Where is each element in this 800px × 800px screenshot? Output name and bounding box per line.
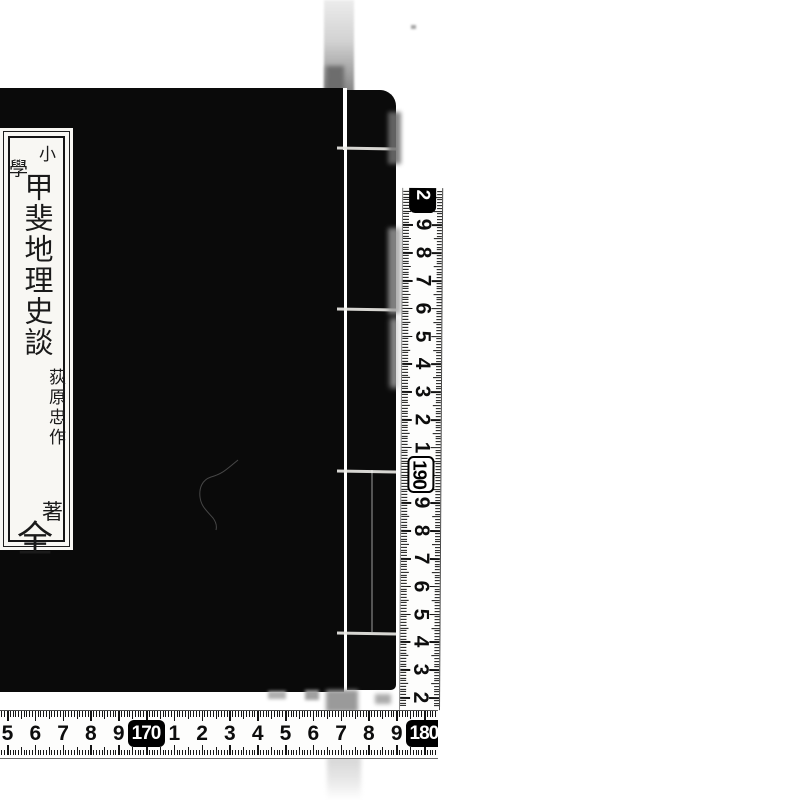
tick-mm bbox=[49, 711, 50, 719]
tick-mm bbox=[24, 750, 25, 756]
ruler-number: 6 bbox=[299, 722, 327, 746]
ruler-number: 8 bbox=[408, 237, 438, 267]
tick-mm bbox=[413, 750, 414, 756]
tick-mm bbox=[157, 711, 158, 717]
tick-mm bbox=[435, 472, 441, 473]
tick-mm bbox=[355, 747, 356, 755]
tick-mm bbox=[216, 711, 217, 719]
tick-mm bbox=[21, 711, 22, 719]
tick-mm bbox=[143, 750, 144, 756]
tick-mm bbox=[202, 711, 204, 721]
tick-mm bbox=[263, 711, 264, 717]
tick-mm bbox=[263, 750, 264, 756]
binding-stitch-4 bbox=[337, 631, 396, 635]
ruler-number: 7 bbox=[327, 722, 355, 746]
tick-mm bbox=[204, 711, 205, 717]
tick-mm bbox=[218, 711, 219, 717]
tick-mm bbox=[63, 745, 65, 755]
tick-mm bbox=[185, 711, 186, 717]
tick-mm bbox=[227, 750, 228, 756]
tick-mm bbox=[79, 750, 80, 756]
tick-mm bbox=[177, 750, 178, 756]
tick-mm bbox=[165, 711, 166, 717]
tick-mm bbox=[246, 711, 247, 717]
ruler-number: 5 bbox=[405, 599, 435, 629]
tick-mm bbox=[260, 711, 261, 717]
tick-mm bbox=[435, 477, 441, 478]
tick-mm bbox=[152, 711, 153, 717]
tick-mm bbox=[77, 747, 78, 755]
tick-mm bbox=[221, 711, 222, 717]
tick-mm bbox=[129, 711, 130, 717]
tick-mm bbox=[437, 191, 443, 192]
tick-mm bbox=[274, 750, 275, 756]
tick-mm bbox=[427, 750, 428, 756]
tick-mm bbox=[321, 711, 322, 717]
ruler-horizontal-cm: 56789170123456789180 bbox=[0, 710, 438, 759]
tick-mm bbox=[213, 750, 214, 756]
tick-mm bbox=[7, 711, 9, 721]
tick-mm bbox=[335, 711, 336, 717]
tick-mm bbox=[154, 711, 155, 717]
tick-mm bbox=[199, 711, 200, 717]
tick-mm bbox=[335, 750, 336, 756]
tick-mm bbox=[374, 711, 375, 717]
ruler-decimeter-box: 2 bbox=[409, 188, 436, 213]
tick-mm bbox=[107, 750, 108, 756]
tick-mm bbox=[385, 711, 386, 717]
tick-mm bbox=[418, 711, 419, 717]
tick-mm bbox=[238, 711, 239, 717]
tick-mm bbox=[403, 205, 409, 206]
tick-mm bbox=[46, 711, 47, 717]
ruler-number: 3 bbox=[215, 722, 243, 746]
ruler-number: 8 bbox=[406, 515, 436, 545]
tick-mm bbox=[363, 711, 364, 717]
tick-mm bbox=[163, 750, 164, 756]
tick-mm bbox=[102, 750, 103, 756]
strap-bottom-smudge bbox=[326, 690, 358, 712]
tick-mm bbox=[377, 750, 378, 756]
tick-mm bbox=[207, 750, 208, 756]
tick-mm bbox=[85, 711, 86, 717]
tick-mm bbox=[132, 711, 133, 719]
tick-mm bbox=[90, 745, 92, 755]
tick-mm bbox=[357, 711, 358, 717]
tick-mm bbox=[71, 711, 72, 717]
tick-mm bbox=[174, 711, 176, 721]
tick-mm bbox=[393, 750, 394, 756]
tick-mm bbox=[190, 750, 191, 756]
tick-mm bbox=[71, 750, 72, 756]
tick-mm bbox=[316, 750, 317, 756]
tick-mm bbox=[157, 750, 158, 756]
tick-mm bbox=[304, 711, 305, 717]
tick-mm bbox=[371, 750, 372, 756]
tick-mm bbox=[35, 745, 37, 755]
tick-mm bbox=[179, 711, 180, 717]
tick-mm bbox=[318, 711, 319, 717]
tick-mm bbox=[332, 711, 333, 717]
tick-mm bbox=[271, 711, 272, 719]
tick-mm bbox=[360, 711, 361, 717]
tick-mm bbox=[160, 711, 161, 719]
tick-mm bbox=[279, 711, 280, 717]
tick-mm bbox=[224, 711, 225, 717]
tick-mm bbox=[396, 711, 398, 721]
tick-mm bbox=[188, 747, 189, 755]
tick-mm bbox=[65, 750, 66, 756]
tick-mm bbox=[40, 750, 41, 756]
tick-mm bbox=[182, 750, 183, 756]
tick-mm bbox=[313, 711, 315, 721]
binding-stitch-3 bbox=[337, 469, 396, 473]
tick-mm bbox=[357, 750, 358, 756]
tick-mm bbox=[349, 711, 350, 717]
ruler-number: 3 bbox=[407, 376, 437, 406]
tick-mm bbox=[29, 750, 30, 756]
tick-mm bbox=[391, 750, 392, 756]
tick-mm bbox=[307, 711, 308, 717]
tick-mm bbox=[277, 750, 278, 756]
ruler-number: 8 bbox=[76, 722, 104, 746]
tick-mm bbox=[327, 711, 328, 719]
tick-mm bbox=[160, 747, 161, 755]
tick-mm bbox=[154, 750, 155, 756]
ruler-number: 6 bbox=[21, 722, 49, 746]
tick-mm bbox=[138, 711, 139, 717]
tick-mm bbox=[229, 745, 231, 755]
tick-mm bbox=[104, 711, 105, 719]
tick-mm bbox=[249, 711, 250, 717]
tick-mm bbox=[271, 747, 272, 755]
tick-mm bbox=[174, 745, 176, 755]
tick-mm bbox=[57, 750, 58, 756]
tick-mm bbox=[341, 711, 343, 721]
tick-mm bbox=[10, 711, 11, 717]
ruler-number: 2 bbox=[407, 404, 437, 434]
tick-mm bbox=[207, 711, 208, 717]
tick-mm bbox=[405, 711, 406, 717]
tick-mm bbox=[238, 750, 239, 756]
tick-mm bbox=[46, 750, 47, 756]
ruler-number: 8 bbox=[354, 722, 382, 746]
tick-mm bbox=[235, 711, 236, 717]
tick-mm bbox=[421, 711, 422, 717]
tick-mm bbox=[32, 711, 33, 717]
tick-mm bbox=[13, 750, 14, 756]
tick-mm bbox=[366, 750, 367, 756]
tick-mm bbox=[121, 711, 122, 717]
tick-mm bbox=[77, 711, 78, 719]
tick-mm bbox=[299, 711, 300, 719]
tick-mm bbox=[421, 750, 422, 756]
tick-mm bbox=[40, 711, 41, 717]
tick-mm bbox=[385, 750, 386, 756]
tick-mm bbox=[403, 202, 409, 203]
tick-mm bbox=[432, 750, 433, 756]
tick-mm bbox=[99, 750, 100, 756]
tick-mm bbox=[435, 466, 441, 467]
tick-mm bbox=[413, 711, 414, 717]
ruler-number: 5 bbox=[407, 321, 437, 351]
scanner-strap-top bbox=[324, 0, 354, 92]
ruler-number: 2 bbox=[188, 722, 216, 746]
tick-mm bbox=[288, 711, 289, 717]
tick-mm bbox=[285, 745, 287, 755]
tick-mm bbox=[249, 750, 250, 756]
tick-mm bbox=[110, 711, 111, 717]
tick-mm bbox=[407, 750, 408, 756]
tick-mm bbox=[43, 750, 44, 756]
tick-mm bbox=[124, 711, 125, 717]
tick-mm bbox=[60, 750, 61, 756]
tick-mm bbox=[324, 750, 325, 756]
ruler-number: 7 bbox=[49, 722, 77, 746]
tick-mm bbox=[437, 202, 443, 203]
tick-mm bbox=[437, 199, 443, 200]
tick-mm bbox=[107, 711, 108, 717]
tick-mm bbox=[402, 711, 403, 717]
tick-mm bbox=[380, 711, 381, 717]
ruler-number: 7 bbox=[408, 265, 438, 295]
tick-mm bbox=[403, 199, 409, 200]
tick-mm bbox=[35, 711, 37, 721]
binding-stitch-2 bbox=[337, 307, 396, 311]
tick-mm bbox=[43, 711, 44, 717]
tick-mm bbox=[93, 750, 94, 756]
tick-mm bbox=[293, 711, 294, 717]
tick-mm bbox=[26, 750, 27, 756]
tick-mm bbox=[82, 711, 83, 717]
tick-mm bbox=[68, 750, 69, 756]
tick-mm bbox=[182, 711, 183, 717]
tick-mm bbox=[299, 747, 300, 755]
tick-mm bbox=[49, 747, 50, 755]
tick-mm bbox=[257, 711, 259, 721]
volume-mark: 全 bbox=[0, 510, 70, 562]
tick-mm bbox=[343, 711, 344, 717]
tick-mm bbox=[232, 750, 233, 756]
tick-mm bbox=[366, 711, 367, 717]
tick-mm bbox=[113, 711, 114, 717]
ruler-number: 6 bbox=[407, 293, 437, 323]
tick-mm bbox=[274, 711, 275, 717]
tick-mm bbox=[416, 750, 417, 756]
tick-mm bbox=[321, 750, 322, 756]
ruler-number: 1 bbox=[407, 432, 437, 462]
tick-mm bbox=[410, 711, 411, 719]
tick-mm bbox=[296, 711, 297, 717]
bottom-smudge-3 bbox=[375, 694, 391, 704]
ruler-number: 4 bbox=[405, 626, 435, 656]
tick-mm bbox=[407, 711, 408, 717]
tick-mm bbox=[149, 750, 150, 756]
tick-mm bbox=[254, 750, 255, 756]
ruler-number: 4 bbox=[243, 722, 271, 746]
tick-mm bbox=[252, 711, 253, 717]
tick-mm bbox=[127, 750, 128, 756]
tick-mm bbox=[435, 750, 436, 756]
tick-mm bbox=[221, 750, 222, 756]
tick-mm bbox=[374, 750, 375, 756]
tick-mm bbox=[4, 711, 5, 717]
tick-mm bbox=[140, 711, 141, 717]
tick-mm bbox=[18, 711, 19, 717]
tick-mm bbox=[216, 747, 217, 755]
tick-mm bbox=[291, 750, 292, 756]
tick-mm bbox=[430, 711, 431, 717]
tick-mm bbox=[403, 194, 409, 195]
tick-mm bbox=[193, 750, 194, 756]
tick-mm bbox=[21, 747, 22, 755]
binding-gap bbox=[343, 88, 347, 150]
tick-mm bbox=[277, 711, 278, 717]
ruler-number: 3 bbox=[405, 654, 435, 684]
tick-mm bbox=[435, 469, 441, 470]
tick-mm bbox=[1, 750, 2, 756]
tick-mm bbox=[74, 711, 75, 717]
title-text: 甲斐地理史談 bbox=[20, 172, 53, 382]
tick-mm bbox=[302, 711, 303, 717]
tick-mm bbox=[18, 750, 19, 756]
tick-mm bbox=[224, 750, 225, 756]
ruler-number: 6 bbox=[406, 571, 436, 601]
tick-mm bbox=[51, 711, 52, 717]
ruler-number: 5 bbox=[271, 722, 299, 746]
tick-mm bbox=[96, 711, 97, 717]
tick-mm bbox=[102, 711, 103, 717]
tick-mm bbox=[310, 711, 311, 717]
spine-seam-line bbox=[371, 470, 373, 632]
tick-mm bbox=[7, 745, 9, 755]
tick-mm bbox=[266, 750, 267, 756]
ruler-decimeter-box: 180 bbox=[406, 720, 439, 747]
tick-mm bbox=[54, 750, 55, 756]
tick-mm bbox=[99, 711, 100, 717]
tick-mm bbox=[293, 750, 294, 756]
tick-mm bbox=[168, 711, 169, 717]
tick-mm bbox=[241, 711, 242, 717]
tick-mm bbox=[282, 711, 283, 717]
tick-mm bbox=[149, 711, 150, 717]
tick-mm bbox=[368, 745, 370, 755]
tick-mm bbox=[307, 750, 308, 756]
tick-mm bbox=[243, 711, 244, 719]
tick-mm bbox=[288, 750, 289, 756]
tick-mm bbox=[363, 750, 364, 756]
tick-mm bbox=[177, 711, 178, 717]
tick-mm bbox=[241, 750, 242, 756]
tick-mm bbox=[285, 711, 287, 721]
tick-mm bbox=[268, 711, 269, 717]
tick-mm bbox=[32, 750, 33, 756]
tick-mm bbox=[410, 747, 411, 755]
tick-mm bbox=[352, 750, 353, 756]
tick-mm bbox=[243, 747, 244, 755]
tick-mm bbox=[368, 711, 370, 721]
tick-mm bbox=[132, 747, 133, 755]
tick-mm bbox=[260, 750, 261, 756]
ruler-number: 9 bbox=[408, 209, 438, 239]
tick-mm bbox=[346, 750, 347, 756]
tick-mm bbox=[296, 750, 297, 756]
tick-mm bbox=[427, 711, 428, 717]
tick-mm bbox=[79, 711, 80, 717]
ruler-number: 2 bbox=[405, 682, 435, 710]
tick-mm bbox=[229, 711, 231, 721]
tick-mm bbox=[399, 750, 400, 756]
tick-mm bbox=[380, 750, 381, 756]
tick-mm bbox=[152, 750, 153, 756]
tick-mm bbox=[29, 711, 30, 717]
bottom-smudge-1 bbox=[268, 691, 286, 699]
tick-mm bbox=[121, 750, 122, 756]
tick-mm bbox=[232, 711, 233, 717]
tick-mm bbox=[115, 750, 116, 756]
tick-mm bbox=[291, 711, 292, 717]
cover-scratch bbox=[190, 448, 250, 618]
book-cover: 小 學 甲斐地理史談 荻原忠作 著 全 bbox=[0, 88, 396, 692]
tick-mm bbox=[430, 750, 431, 756]
tick-mm bbox=[435, 464, 441, 465]
tick-mm bbox=[213, 711, 214, 717]
tick-mm bbox=[82, 750, 83, 756]
tick-mm bbox=[371, 711, 372, 717]
tick-mm bbox=[199, 750, 200, 756]
tick-mm bbox=[196, 750, 197, 756]
tick-mm bbox=[38, 750, 39, 756]
tick-mm bbox=[218, 750, 219, 756]
tick-mm bbox=[10, 750, 11, 756]
tick-mm bbox=[93, 711, 94, 717]
tick-mm bbox=[246, 750, 247, 756]
tick-mm bbox=[193, 711, 194, 717]
tick-mm bbox=[104, 747, 105, 755]
tick-mm bbox=[399, 711, 400, 717]
tick-mm bbox=[403, 191, 409, 192]
tick-mm bbox=[268, 750, 269, 756]
tick-mm bbox=[143, 711, 144, 717]
tick-mm bbox=[88, 750, 89, 756]
tick-mm bbox=[74, 750, 75, 756]
tick-mm bbox=[96, 750, 97, 756]
tick-mm bbox=[210, 750, 211, 756]
tick-mm bbox=[324, 711, 325, 717]
ruler-vertical-cm: 234567891901234567892 bbox=[399, 188, 443, 710]
tick-mm bbox=[85, 750, 86, 756]
tick-mm bbox=[252, 750, 253, 756]
tick-mm bbox=[393, 711, 394, 717]
tick-mm bbox=[437, 194, 443, 195]
tick-mm bbox=[346, 711, 347, 717]
tick-mm bbox=[432, 711, 433, 717]
tick-mm bbox=[68, 711, 69, 717]
tick-mm bbox=[382, 711, 383, 719]
tick-mm bbox=[124, 750, 125, 756]
tick-mm bbox=[329, 711, 330, 717]
tick-mm bbox=[1, 711, 2, 717]
tick-mm bbox=[332, 750, 333, 756]
tick-mm bbox=[318, 750, 319, 756]
tick-mm bbox=[227, 711, 228, 717]
tick-mm bbox=[202, 745, 204, 755]
tick-mm bbox=[257, 745, 259, 755]
tick-mm bbox=[127, 711, 128, 717]
tick-mm bbox=[402, 750, 403, 756]
ruler-number: 4 bbox=[407, 348, 437, 378]
tick-mm bbox=[204, 750, 205, 756]
